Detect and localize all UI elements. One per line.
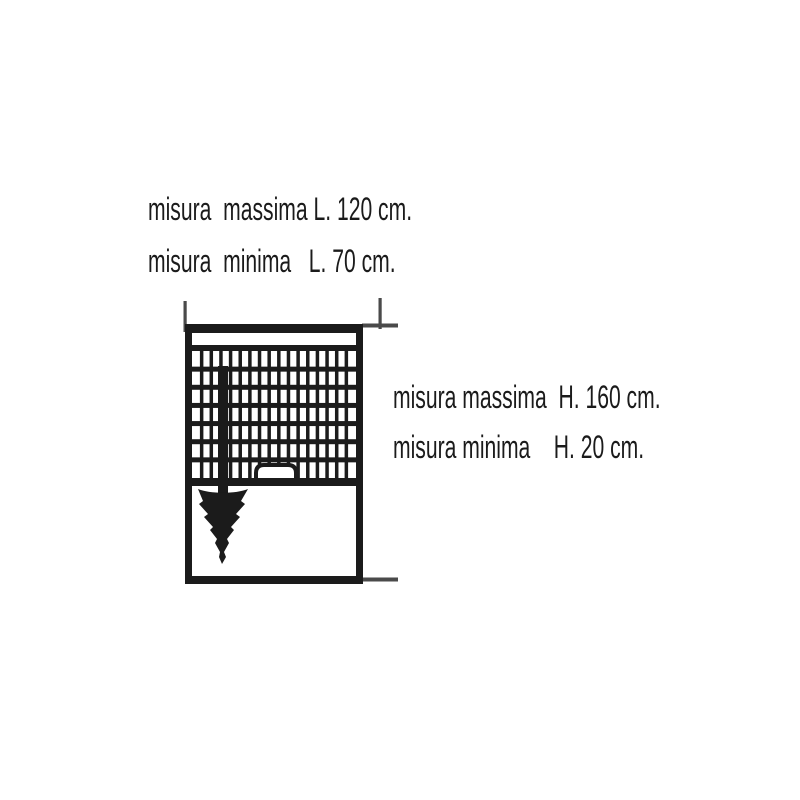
roller-blind-diagram bbox=[0, 0, 800, 800]
mesh-grid-line bbox=[192, 457, 356, 462]
mesh-grid bbox=[192, 351, 356, 478]
arrow-shaft bbox=[218, 366, 228, 494]
frame-top-bar bbox=[185, 324, 363, 333]
mesh-grid-line bbox=[192, 385, 356, 390]
mesh-curtain bbox=[192, 345, 356, 486]
frame-right-bar bbox=[356, 324, 363, 584]
mesh-top-bar bbox=[192, 345, 356, 351]
pull-handle bbox=[256, 465, 296, 480]
frame-bottom-bar bbox=[185, 576, 363, 584]
arrow-head bbox=[198, 489, 248, 564]
mesh-grid-line bbox=[192, 421, 356, 426]
tick-line-bottom-right bbox=[362, 578, 398, 582]
tick-line-top-right bbox=[362, 324, 398, 328]
mesh-grid-line bbox=[192, 439, 356, 444]
mesh-grid-line bbox=[192, 367, 356, 372]
product-measurement-diagram: misura massima L. 120 cm. misura minima … bbox=[0, 0, 800, 800]
mesh-grid-line bbox=[192, 403, 356, 408]
frame-left-bar bbox=[185, 324, 192, 584]
